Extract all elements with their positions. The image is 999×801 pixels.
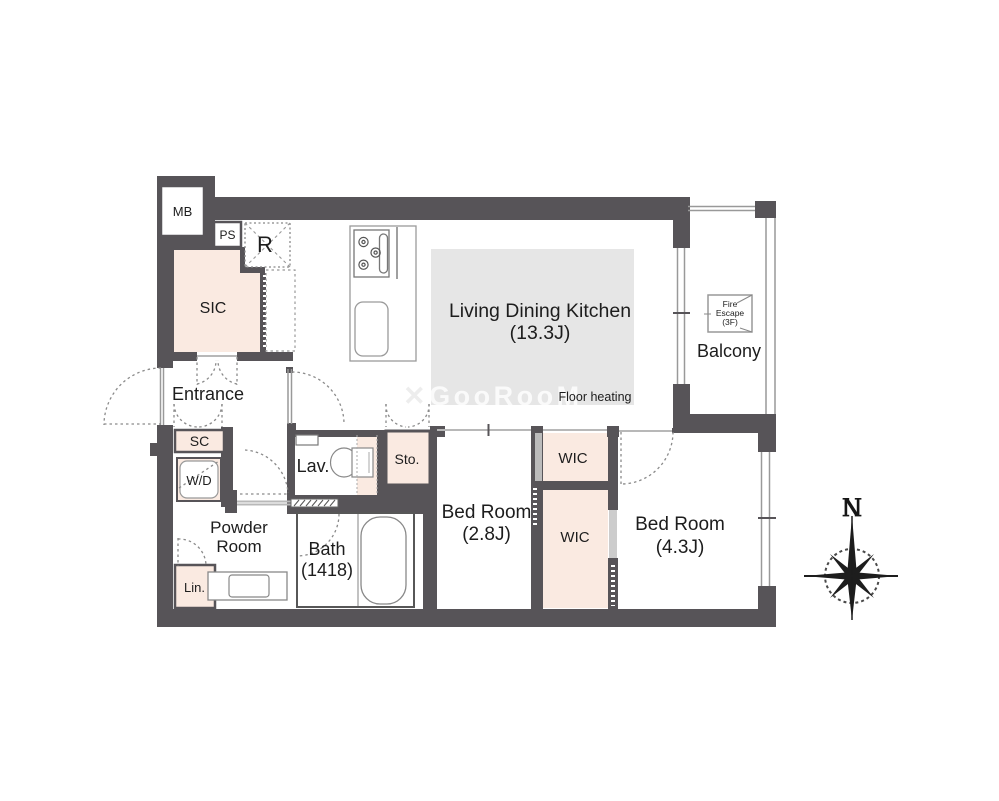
svg-text:Bed Room: Bed Room (635, 514, 725, 535)
svg-text:Powder: Powder (210, 518, 268, 537)
svg-text:W/D: W/D (186, 473, 211, 488)
svg-text:(2.8J): (2.8J) (462, 524, 511, 545)
svg-text:✕GooRooM: ✕GooRooM (403, 381, 583, 411)
svg-text:(3F): (3F) (722, 317, 738, 327)
svg-text:R: R (257, 232, 273, 257)
svg-text:PS: PS (219, 228, 235, 242)
svg-text:SC: SC (190, 433, 209, 449)
svg-text:WIC: WIC (558, 450, 587, 467)
svg-text:Lav.: Lav. (297, 456, 330, 476)
svg-text:Lin.: Lin. (184, 580, 205, 595)
svg-text:Floor heating: Floor heating (559, 390, 632, 404)
svg-text:MB: MB (173, 204, 193, 219)
svg-text:Room: Room (216, 537, 261, 556)
svg-text:Balcony: Balcony (697, 341, 761, 361)
svg-text:Living Dining Kitchen: Living Dining Kitchen (449, 300, 631, 322)
svg-text:Bed Room: Bed Room (442, 502, 532, 523)
svg-text:(13.3J): (13.3J) (510, 322, 571, 344)
svg-text:WIC: WIC (560, 529, 589, 546)
svg-text:(1418): (1418) (301, 560, 353, 580)
svg-text:Sto.: Sto. (395, 451, 420, 467)
svg-text:Entrance: Entrance (172, 384, 244, 404)
svg-text:(4.3J): (4.3J) (656, 537, 705, 558)
svg-text:SIC: SIC (200, 300, 227, 317)
svg-text:Bath: Bath (308, 539, 345, 559)
